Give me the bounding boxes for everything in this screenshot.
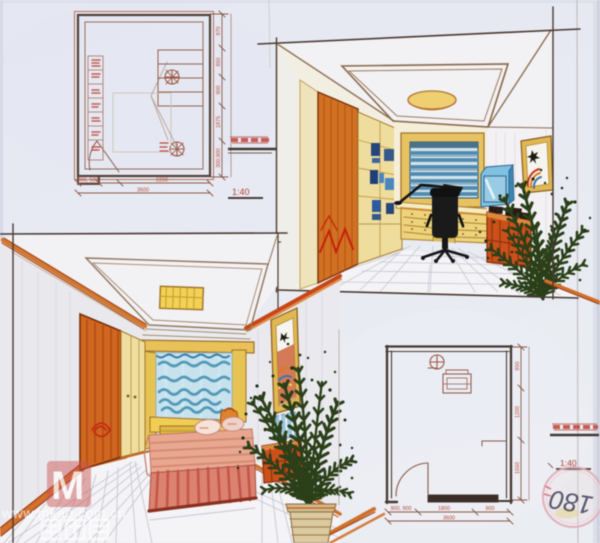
svg-text:1:40: 1:40: [232, 187, 250, 197]
svg-text:3600: 3600: [443, 516, 455, 522]
svg-text:1200: 1200: [515, 406, 521, 418]
svg-text:900: 900: [216, 86, 222, 95]
svg-text:900: 900: [486, 506, 495, 512]
svg-text:1875: 1875: [216, 116, 222, 128]
svg-text:2200: 2200: [156, 178, 168, 184]
svg-text:1800: 1800: [438, 506, 450, 512]
svg-text:3600: 3600: [137, 188, 149, 194]
svg-text:850: 850: [515, 362, 521, 371]
svg-text:900, 500: 900, 500: [78, 178, 99, 184]
svg-text:300,900: 300,900: [216, 148, 222, 168]
svg-text:1550: 1550: [515, 462, 521, 474]
svg-text:www.mkao.com.cn: www.mkao.com.cn: [1, 505, 126, 521]
svg-text:M: M: [51, 464, 84, 508]
svg-text:850: 850: [216, 58, 222, 67]
svg-text:900, 900: 900, 900: [391, 506, 412, 512]
svg-text:970: 970: [216, 27, 222, 36]
